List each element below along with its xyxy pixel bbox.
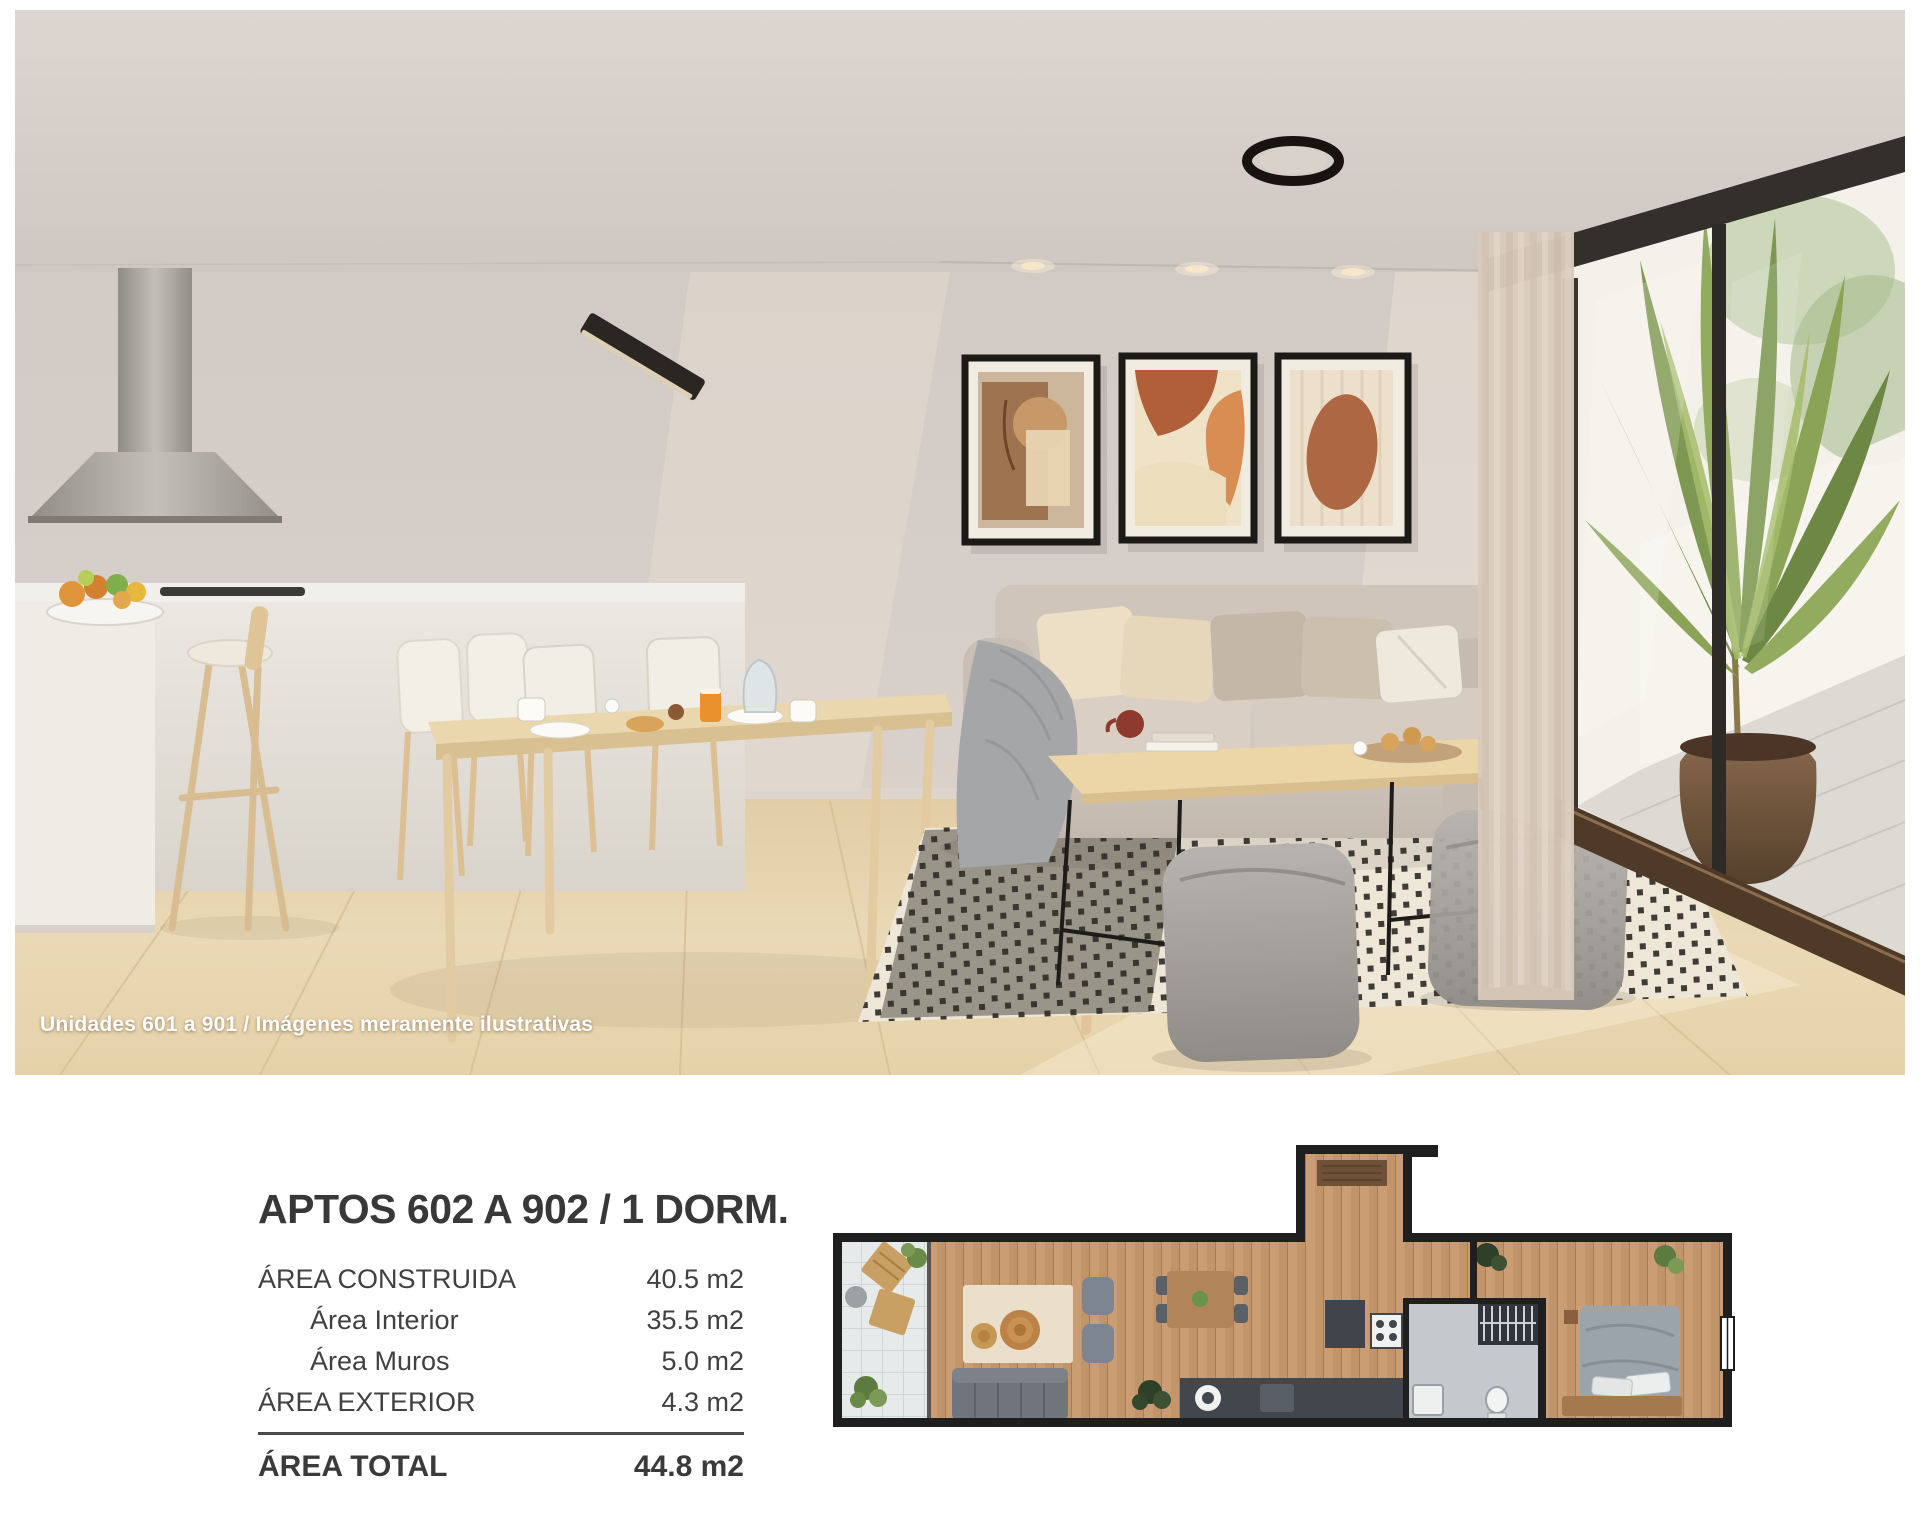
floor-plan-drawing — [820, 1130, 1750, 1440]
unit-title: APTOS 602 A 902 / 1 DORM. — [258, 1186, 744, 1233]
plan-bedroom-window — [1721, 1317, 1734, 1370]
sheer-curtain — [1478, 232, 1574, 1000]
plan-balcony-glass — [927, 1242, 931, 1418]
wall-art-triptych — [965, 356, 1418, 554]
brochure-page: Unidades 601 a 901 / Imágenes meramente … — [0, 0, 1920, 1530]
area-row-interior: Área Interior 35.5 m2 — [258, 1300, 744, 1341]
area-row-exterior: ÁREA EXTERIOR 4.3 m2 — [258, 1382, 744, 1423]
unit-info: APTOS 602 A 902 / 1 DORM. ÁREA CONSTRUID… — [258, 1186, 744, 1491]
art-frame-1 — [978, 372, 1084, 528]
interior-scene — [15, 10, 1905, 1075]
photo-caption: Unidades 601 a 901 / Imágenes meramente … — [40, 1013, 593, 1037]
area-row-muros: Área Muros 5.0 m2 — [258, 1341, 744, 1382]
art-frame-3 — [1290, 370, 1393, 526]
floor-plan — [820, 1130, 1750, 1440]
apartment-render-photo: Unidades 601 a 901 / Imágenes meramente … — [15, 10, 1905, 1075]
area-row-construida: ÁREA CONSTRUIDA 40.5 m2 — [258, 1259, 744, 1300]
art-frame-2 — [1135, 370, 1245, 526]
area-table: ÁREA CONSTRUIDA 40.5 m2 Área Interior 35… — [258, 1259, 744, 1491]
area-row-total: ÁREA TOTAL 44.8 m2 — [258, 1443, 744, 1491]
pouf-left — [1152, 842, 1372, 1072]
kitchen-island — [15, 583, 745, 933]
total-separator — [258, 1432, 744, 1435]
plan-bedroom — [1562, 1306, 1682, 1416]
window-wall — [1478, 136, 1905, 1000]
